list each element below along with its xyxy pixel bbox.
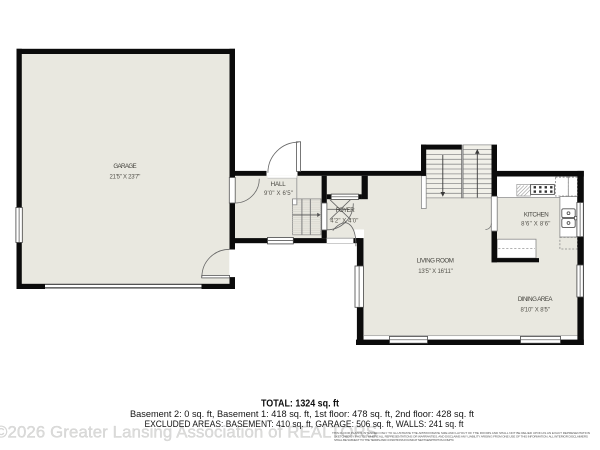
svg-text:8'10" X 8'5": 8'10" X 8'5" [521,308,550,314]
svg-text:9'0" X 6'5": 9'0" X 6'5" [264,191,293,197]
svg-text:LIVING ROOM: LIVING ROOM [417,258,454,265]
svg-text:KITCHEN: KITCHEN [524,212,549,219]
svg-text:DINING AREA: DINING AREA [518,296,553,303]
svg-text:GARAGE: GARAGE [113,163,136,170]
svg-text:HALL: HALL [271,181,287,188]
svg-text:EXCLUDED AREAS: BASEMENT: 410: EXCLUDED AREAS: BASEMENT: 410 sq. ft, GA… [145,418,464,429]
svg-text:FOYER: FOYER [336,207,356,214]
svg-text:4'2" X 4'0": 4'2" X 4'0" [330,219,358,225]
svg-text:8'6" X 8'6": 8'6" X 8'6" [521,222,550,228]
svg-text:SHALL BE SUBJECT TO THE TERMS: SHALL BE SUBJECT TO THE TERMS AND CONDIT… [334,438,455,442]
svg-text:13'5" X 16'11": 13'5" X 16'11" [418,269,453,275]
svg-text:21'5" X 23'7": 21'5" X 23'7" [110,174,141,180]
